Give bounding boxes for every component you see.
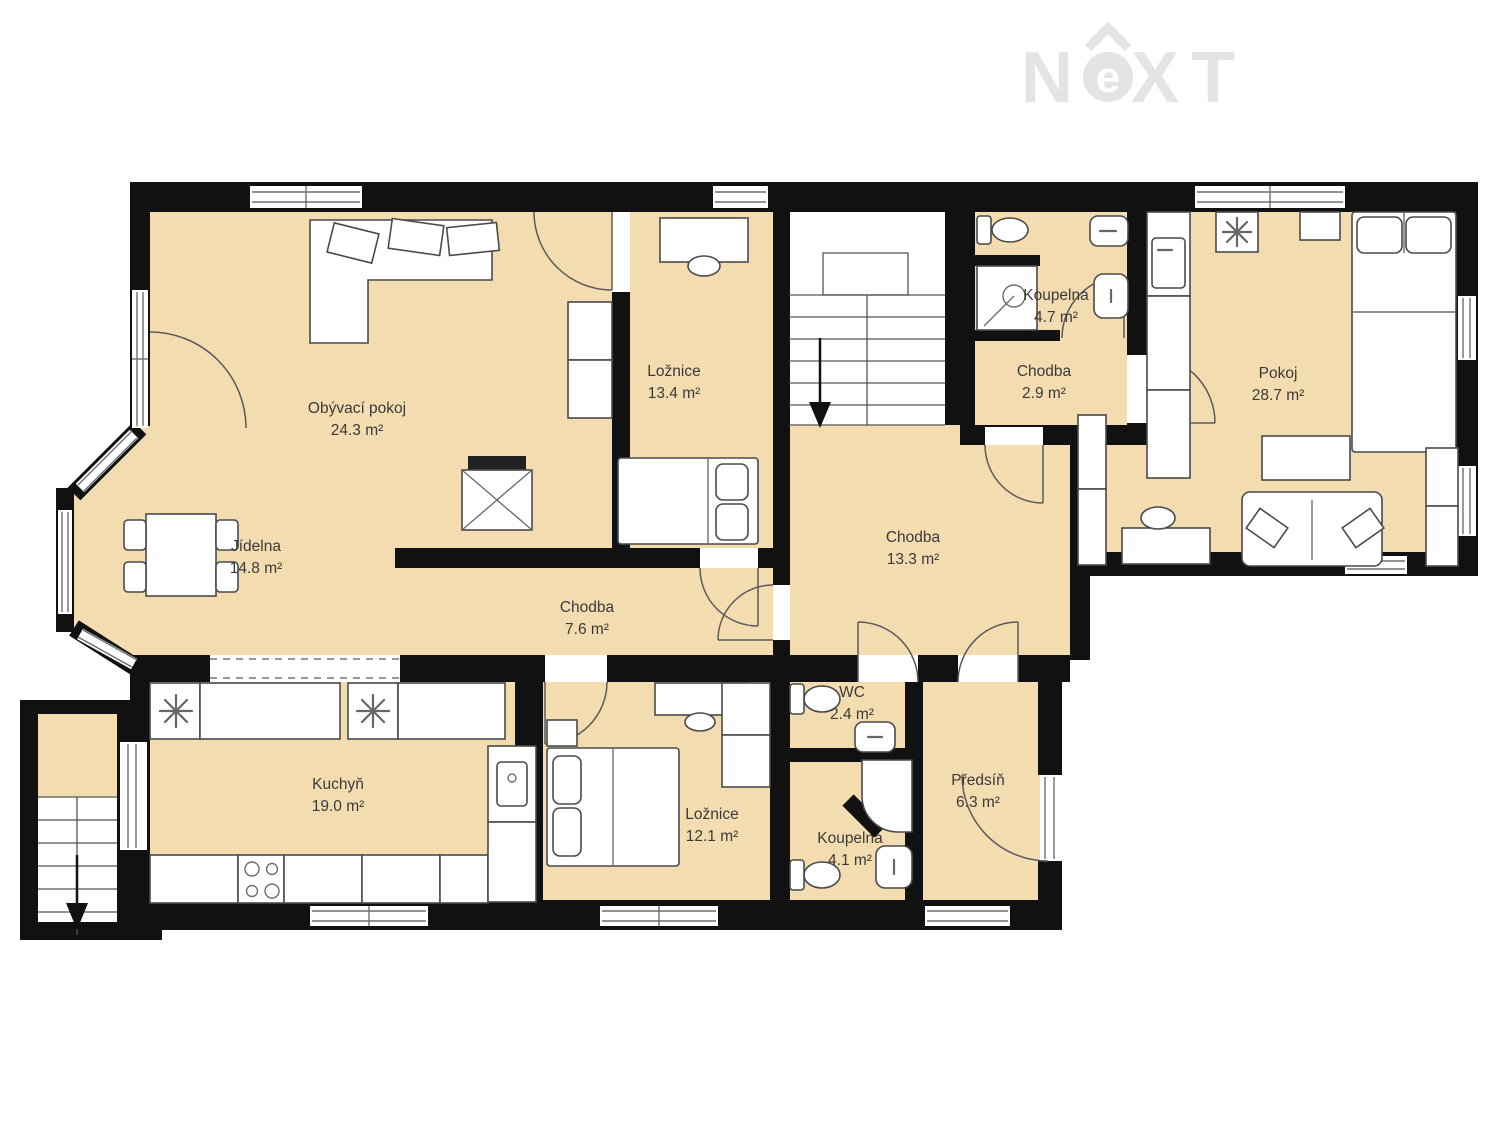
room-area: 19.0 m² — [312, 798, 365, 815]
wc-sink — [855, 722, 895, 752]
room-name: Koupelna — [1023, 287, 1089, 304]
tv-cabinet — [462, 456, 532, 530]
bathroom1-bidet — [1094, 274, 1128, 318]
room-name: Pokoj — [1259, 365, 1298, 382]
room-name: Obývací pokoj — [308, 400, 406, 417]
bedroom1-bed — [618, 458, 758, 544]
room-name: Chodba — [560, 599, 615, 616]
pokoj-coffee-table — [1262, 436, 1350, 480]
room-name: Koupelna — [817, 830, 883, 847]
room-area: 2.9 m² — [1022, 385, 1066, 402]
room-area: 7.6 m² — [565, 621, 609, 638]
kitchen-counter-bottom — [150, 855, 488, 903]
room-name: Ložnice — [647, 363, 700, 380]
pokoj-bed — [1352, 212, 1456, 452]
floorplan-page: Obývací pokoj 24.3 m² Ložnice 13.4 m² Ko… — [0, 0, 1500, 1125]
logo-roof-icon — [1088, 28, 1128, 48]
bedroom2-wardrobe — [722, 683, 770, 787]
room-area: 6.3 m² — [956, 794, 1000, 811]
pokoj-nightstand — [1300, 212, 1340, 240]
bathroom2-sink — [876, 846, 912, 888]
room-area: 14.8 m² — [230, 560, 283, 577]
room-name: WC — [839, 684, 865, 701]
room-area: 24.3 m² — [331, 422, 384, 439]
room-name: Předsíň — [951, 772, 1004, 789]
room-area: 2.4 m² — [830, 706, 874, 723]
room-area: 28.7 m² — [1252, 387, 1305, 404]
kitchen-tall-cabinet — [488, 746, 536, 902]
room-name: Jídelna — [231, 538, 281, 555]
pokoj-sofa — [1242, 492, 1384, 566]
floor-stair-landing — [38, 713, 117, 797]
logo-letter-n: N — [1021, 38, 1073, 118]
room-area: 13.4 m² — [648, 385, 701, 402]
room-name: Ložnice — [685, 806, 738, 823]
room-name: Kuchyň — [312, 776, 364, 793]
next-logo: N e X T — [1021, 28, 1235, 118]
pokoj-wardrobe-left — [1078, 415, 1106, 565]
room-area: 13.3 m² — [887, 551, 940, 568]
washing-machine — [1216, 212, 1258, 252]
room-area: 4.1 m² — [828, 852, 872, 869]
room-name: Chodba — [1017, 363, 1072, 380]
bathroom1-sink — [1090, 216, 1128, 246]
appliance-icon-2 — [357, 695, 389, 727]
floorplan-drawing: Obývací pokoj 24.3 m² Ložnice 13.4 m² Ko… — [0, 0, 1500, 1125]
room-area: 12.1 m² — [686, 828, 739, 845]
logo-letter-x: X — [1131, 38, 1179, 118]
logo-letter-t: T — [1191, 38, 1235, 118]
pokoj-wardrobe-right — [1426, 448, 1458, 566]
bathroom1-toilet — [977, 216, 1028, 244]
logo-letter-e: e — [1096, 53, 1120, 102]
bedroom1-wardrobe — [568, 302, 612, 418]
pokoj-kitchenette — [1147, 212, 1190, 478]
room-area: 4.7 m² — [1034, 309, 1078, 326]
room-name: Chodba — [886, 529, 941, 546]
kitchen-counter-top — [150, 683, 505, 739]
appliance-icon-1 — [160, 695, 192, 727]
